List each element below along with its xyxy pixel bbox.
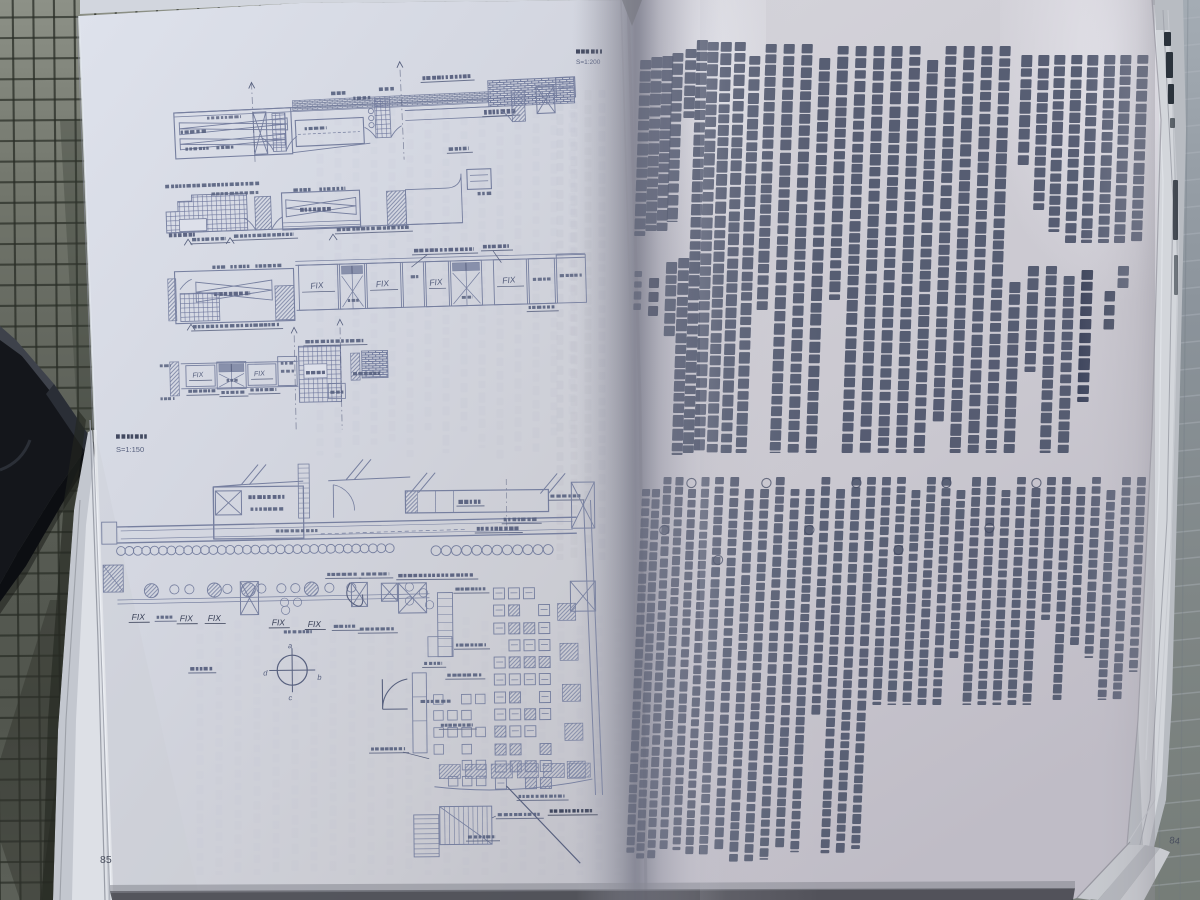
svg-text:a: a [288,641,292,650]
svg-text:FIX: FIX [180,613,194,623]
svg-text:c: c [288,693,292,702]
svg-text:FIX: FIX [310,280,324,291]
svg-text:S=1:150: S=1:150 [116,445,144,454]
svg-text:FIX: FIX [375,278,389,289]
svg-text:FIX: FIX [192,372,204,380]
svg-text:FIX: FIX [502,274,516,285]
svg-text:84: 84 [1169,835,1181,847]
svg-text:85: 85 [100,854,112,866]
svg-text:FIX: FIX [254,370,266,378]
svg-text:FIX: FIX [208,613,222,623]
svg-text:FIX: FIX [429,276,443,287]
svg-text:b: b [317,673,321,682]
svg-text:FIX: FIX [132,612,146,622]
svg-text:FIX: FIX [308,619,322,629]
svg-text:FIX: FIX [272,617,286,627]
